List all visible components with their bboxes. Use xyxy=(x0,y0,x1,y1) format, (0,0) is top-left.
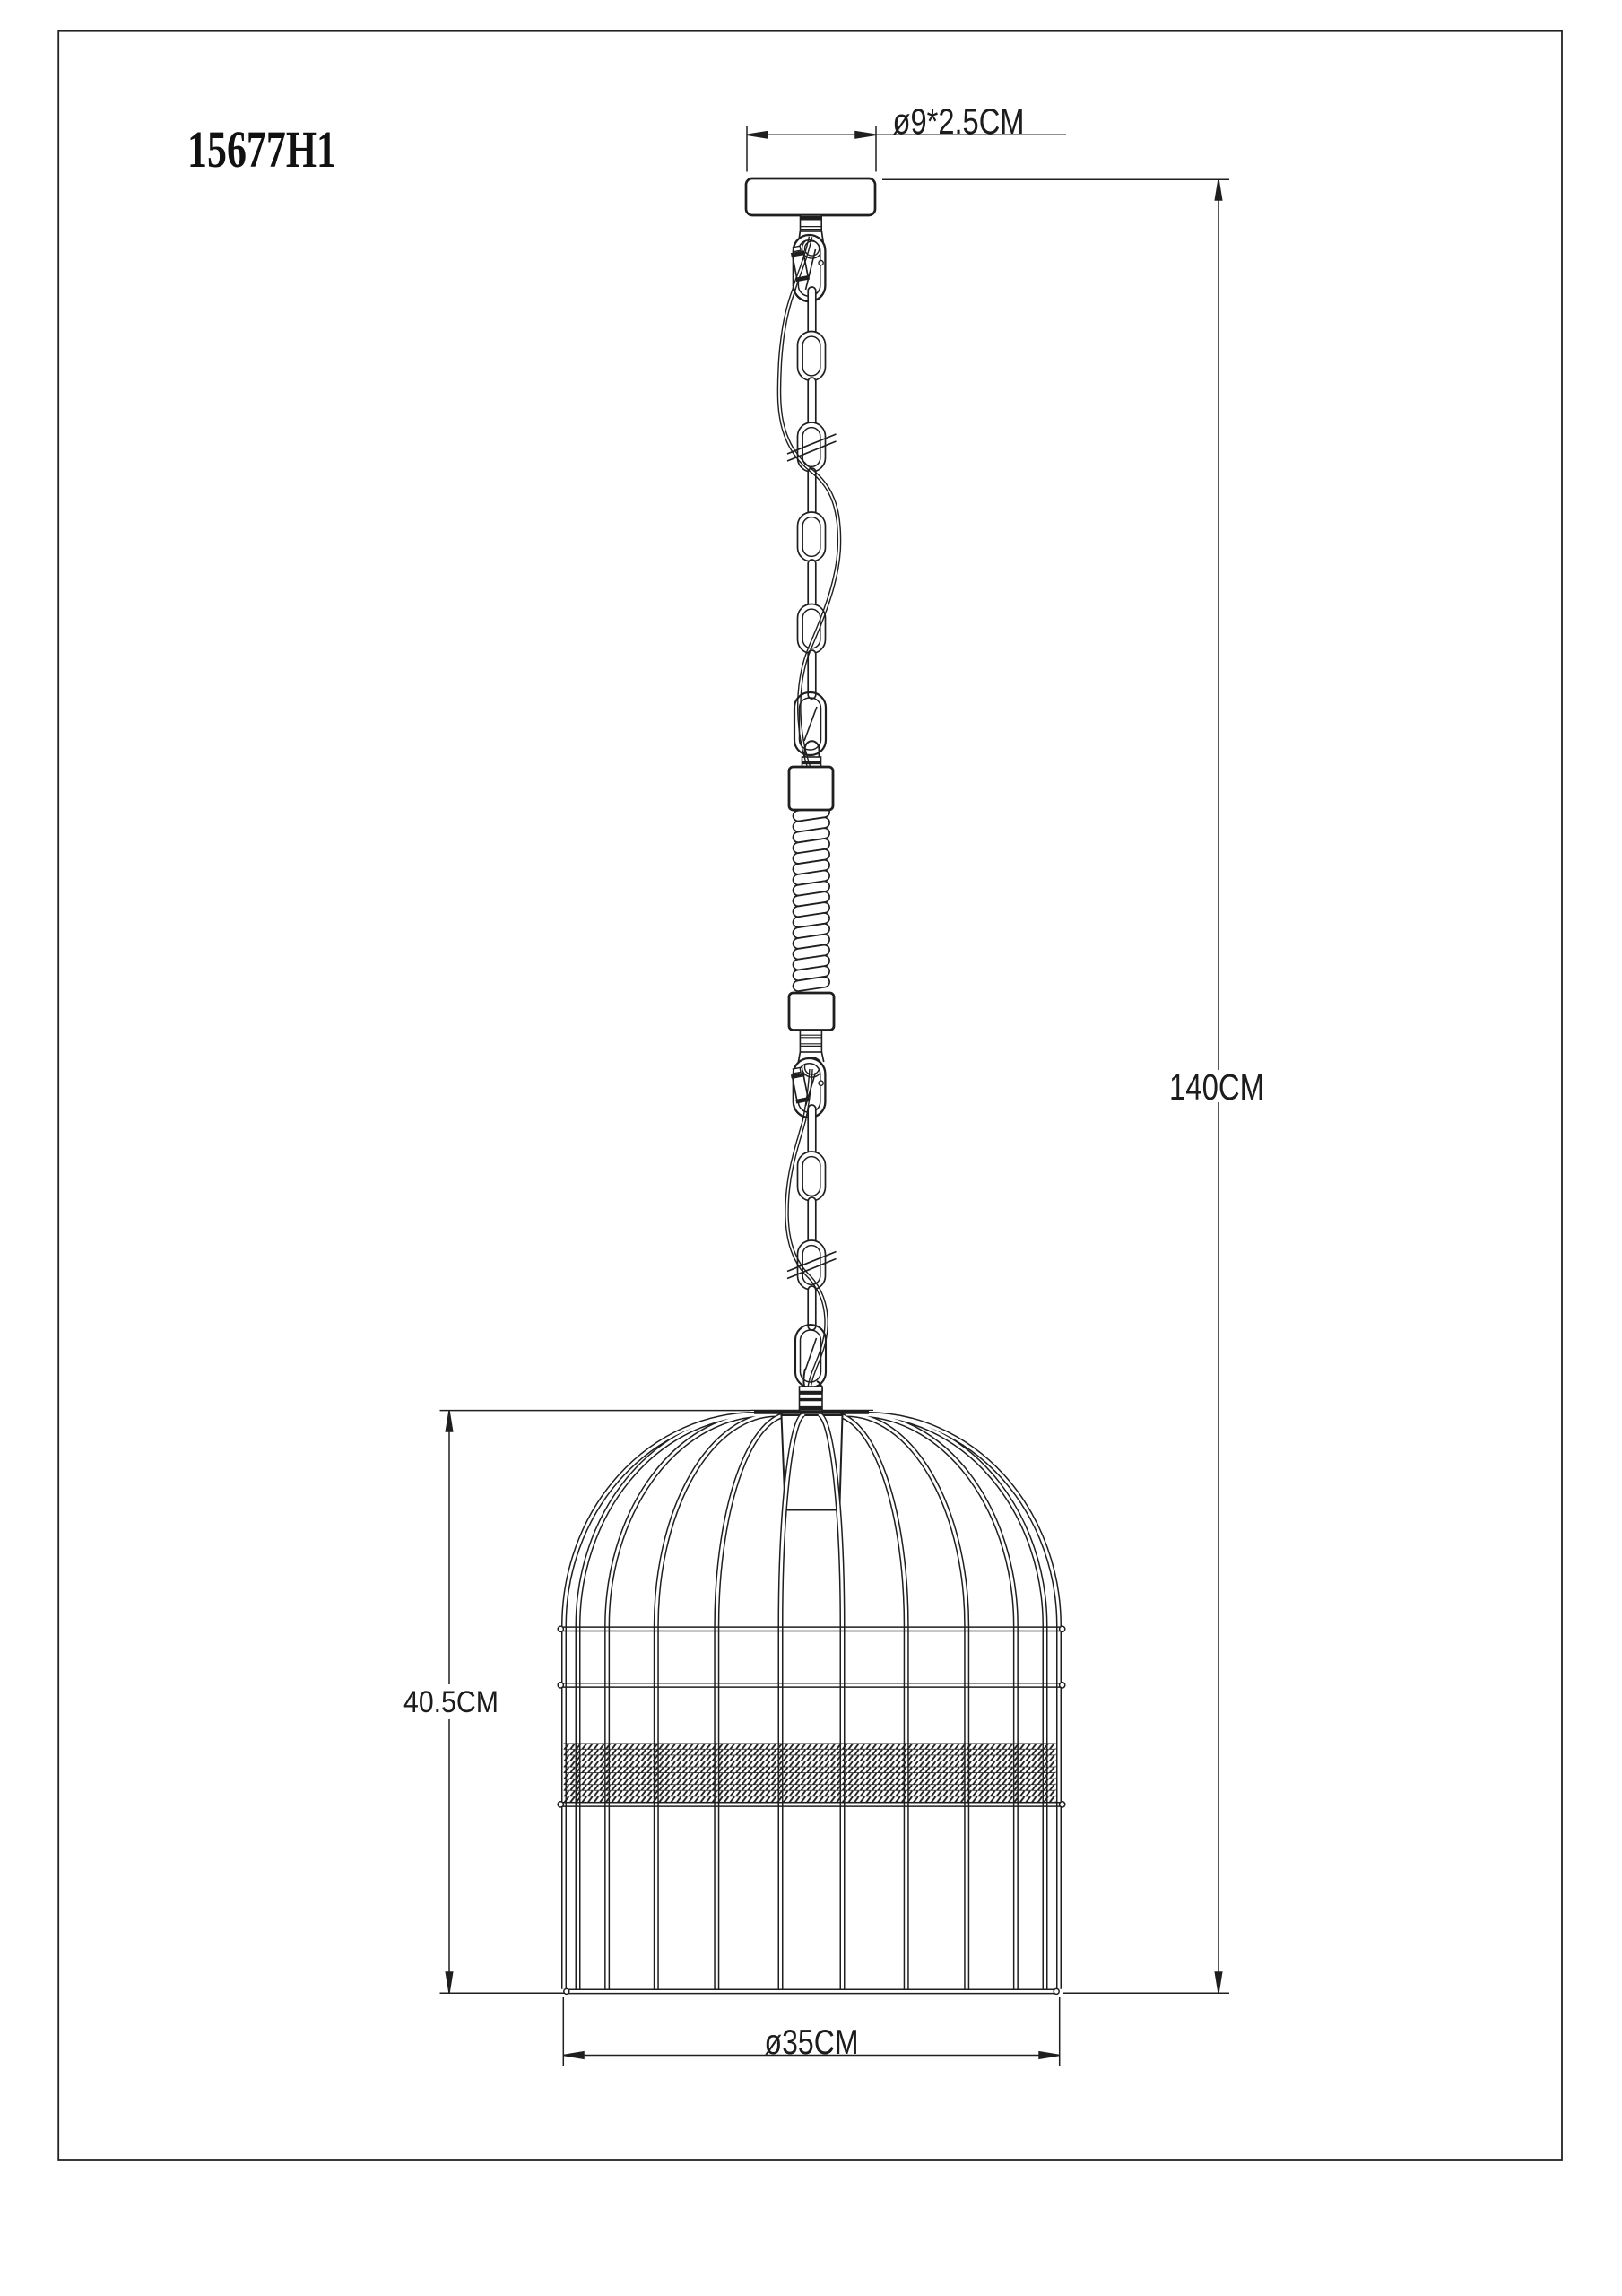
svg-text:ø35CM: ø35CM xyxy=(765,2023,859,2062)
svg-text:40.5CM: 40.5CM xyxy=(403,1685,499,1719)
svg-text:140CM: 140CM xyxy=(1169,1066,1264,1108)
svg-text:ø9*2.5CM: ø9*2.5CM xyxy=(893,102,1025,142)
svg-text:15677H1: 15677H1 xyxy=(187,120,336,178)
